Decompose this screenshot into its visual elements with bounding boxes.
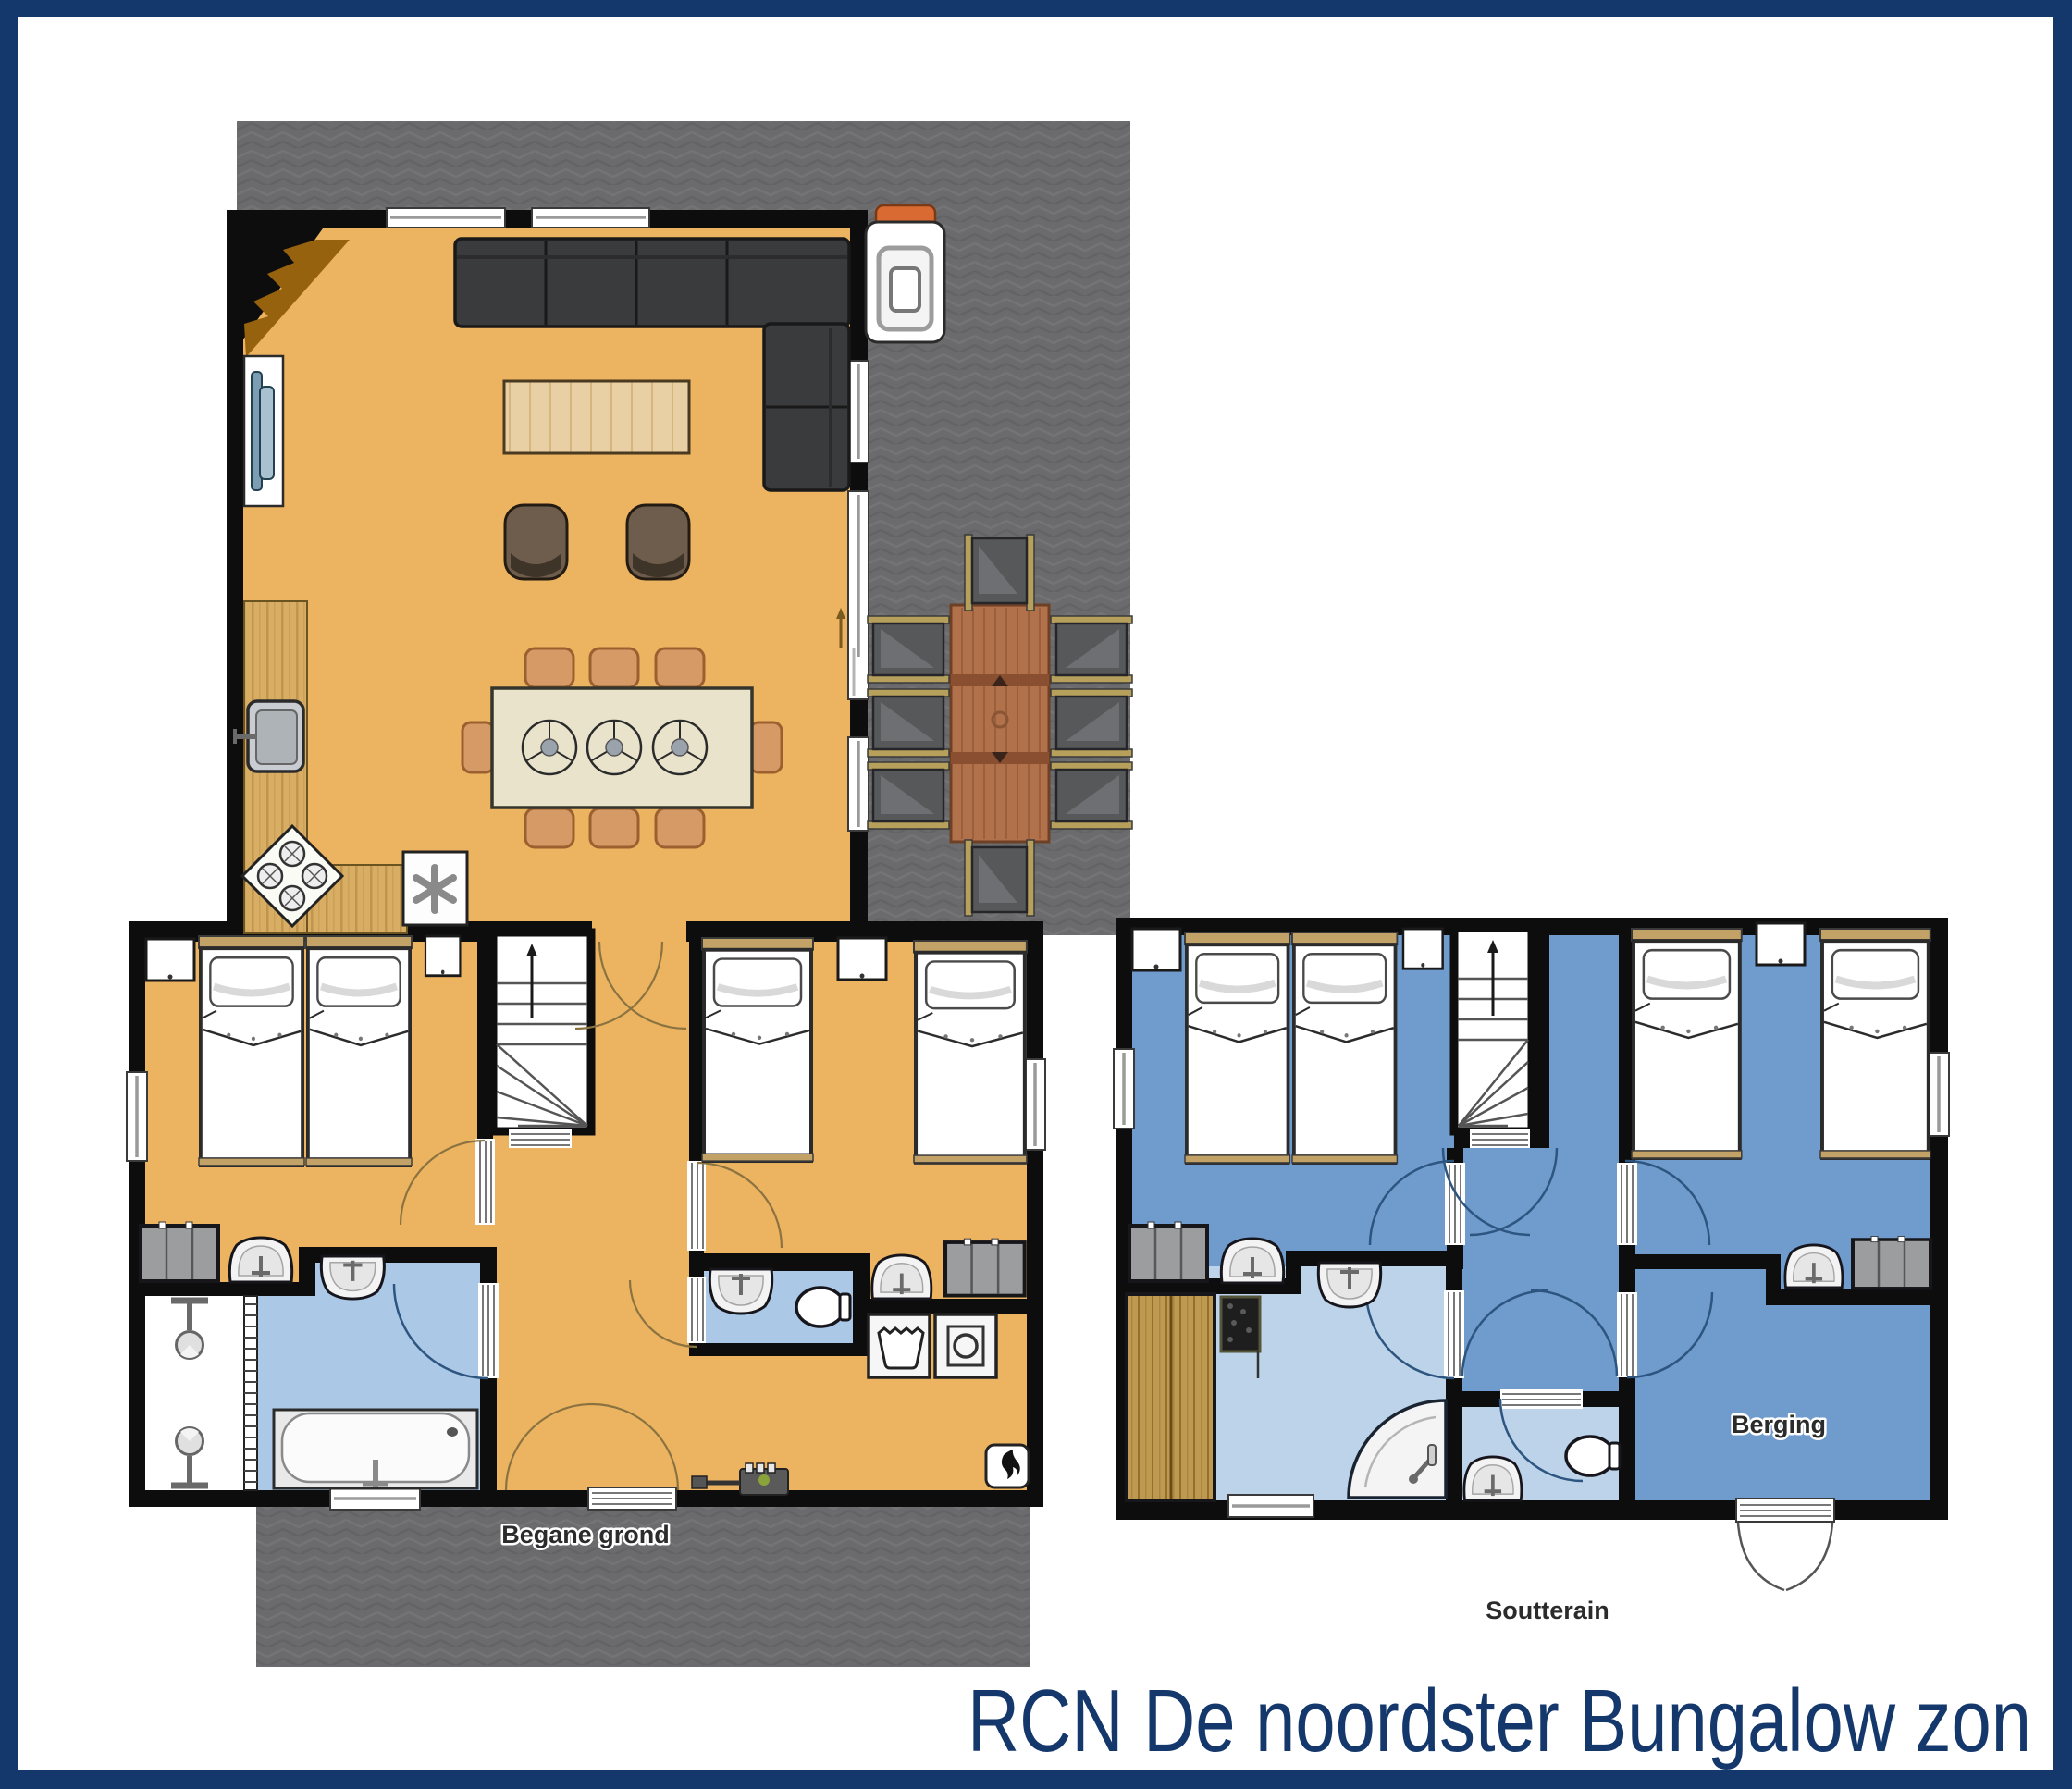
svg-text:Berging: Berging: [1732, 1411, 1826, 1438]
svg-text:Begane grond: Begane grond: [501, 1521, 670, 1548]
svg-text:RCN De noordster Bungalow zon: RCN De noordster Bungalow zon: [968, 1672, 2031, 1770]
svg-text:Soutterain: Soutterain: [1486, 1597, 1609, 1624]
